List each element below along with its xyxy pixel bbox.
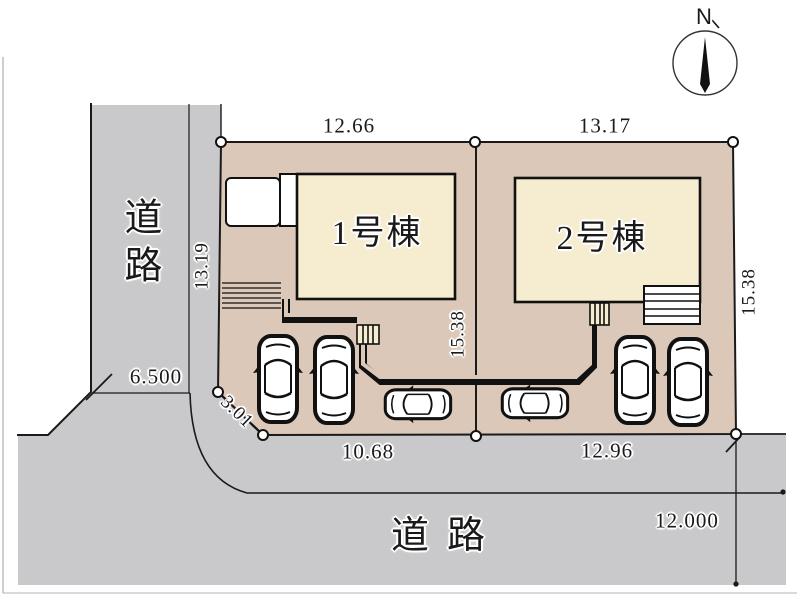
building-2-label: 2号棟	[557, 222, 648, 256]
lot2-south-dimension: 12.96	[581, 441, 633, 462]
car-icon	[502, 384, 567, 422]
compass-needle-icon	[700, 37, 710, 93]
lot1-west-dimension: 13.19	[193, 242, 212, 290]
road-south-width-dimension: 12.000	[655, 511, 719, 532]
lot1-east-dimension: 15.38	[449, 310, 468, 358]
lot2-east-dimension: 15.38	[740, 268, 759, 316]
compass-north-label: N	[696, 6, 712, 28]
car-icon	[610, 337, 660, 423]
lot1-carport-pads	[226, 174, 298, 226]
lot1-north-dimension: 12.66	[323, 116, 375, 137]
car-icon	[385, 385, 450, 423]
lot2-deck-steps	[644, 286, 700, 324]
site-plan-canvas: N 道路 道路 1号棟 2号棟 12.66 13.17 13.19 15.38 …	[0, 0, 800, 600]
lot1-south-dimension: 10.68	[342, 442, 394, 463]
car-icon	[253, 336, 303, 422]
building-1-label: 1号棟	[332, 217, 423, 251]
road-west-label: 道路	[120, 197, 158, 293]
car-icon	[309, 337, 359, 423]
lot2-north-dimension: 13.17	[579, 116, 631, 137]
compass	[673, 20, 737, 95]
road-south-label: 道路	[391, 517, 503, 555]
car-icon	[663, 339, 713, 425]
road-west-width-dimension: 6.500	[130, 367, 182, 388]
